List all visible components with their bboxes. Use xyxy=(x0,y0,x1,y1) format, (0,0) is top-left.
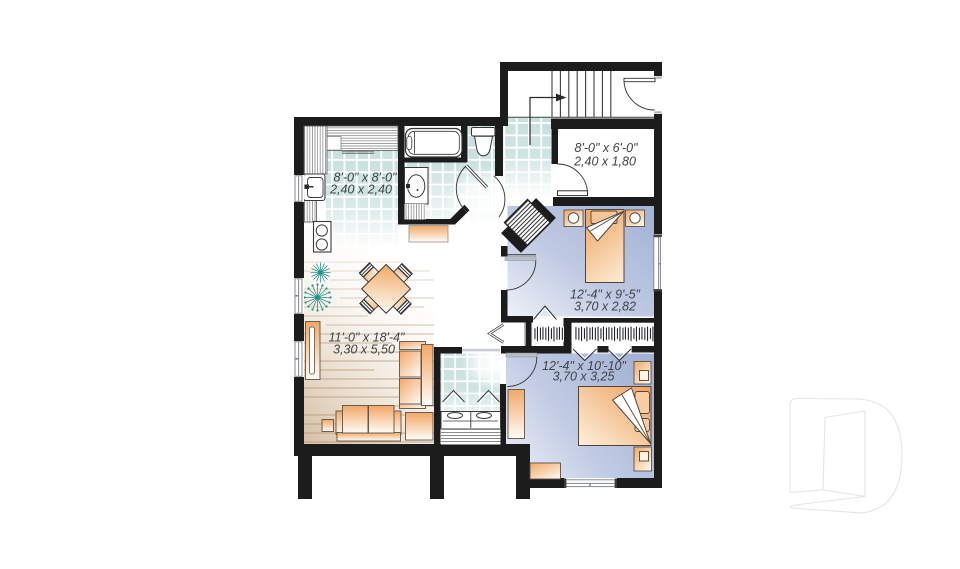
svg-text:3,30 x 5,50: 3,30 x 5,50 xyxy=(333,343,395,357)
svg-text:2,40 x 1,80: 2,40 x 1,80 xyxy=(573,155,636,169)
svg-text:2,40 x 2,40: 2,40 x 2,40 xyxy=(329,183,392,197)
svg-text:3,70 x 2,82: 3,70 x 2,82 xyxy=(574,300,636,314)
svg-text:8'-0" x 6'-0": 8'-0" x 6'-0" xyxy=(575,141,639,155)
svg-text:3,70 x 3,25: 3,70 x 3,25 xyxy=(553,370,615,384)
